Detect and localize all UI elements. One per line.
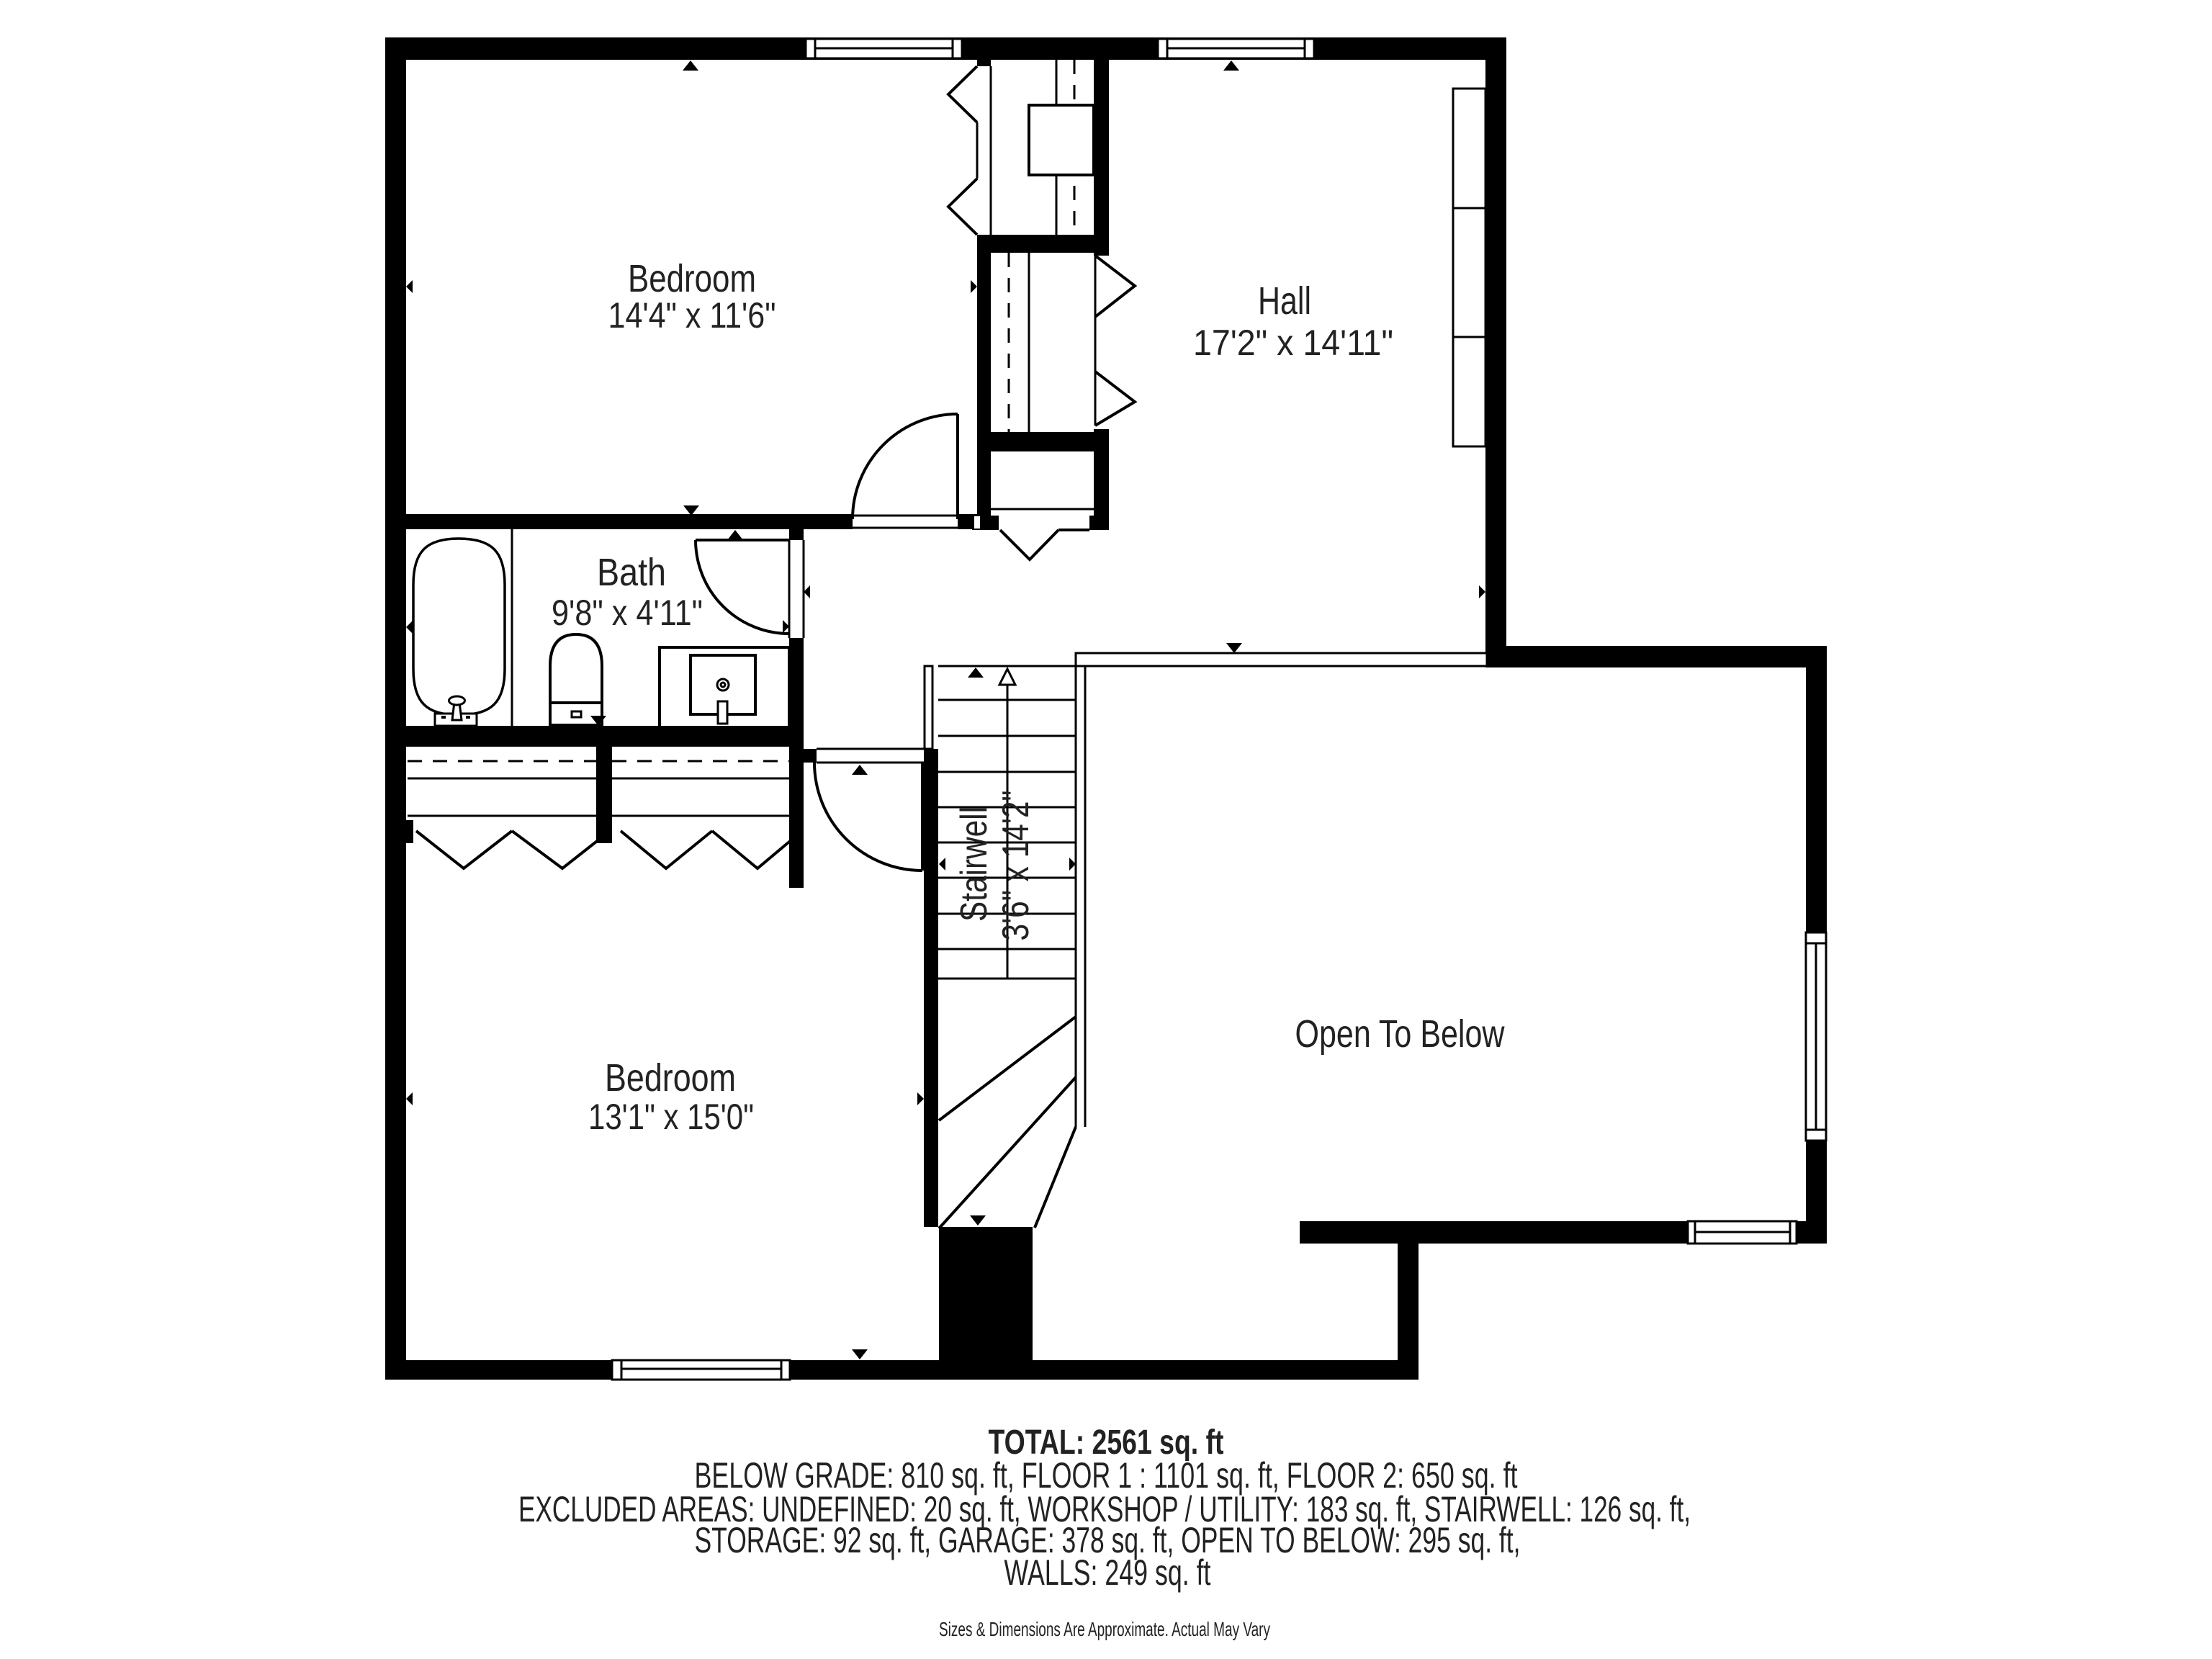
svg-text:3'6" x 14'2": 3'6" x 14'2" <box>995 791 1037 941</box>
svg-text:17'2" x 14'11": 17'2" x 14'11" <box>1193 323 1393 363</box>
svg-text:14'4" x 11'6": 14'4" x 11'6" <box>608 295 776 336</box>
svg-text:Bedroom: Bedroom <box>605 1056 736 1100</box>
svg-text:13'1" x 15'0": 13'1" x 15'0" <box>588 1097 754 1137</box>
svg-text:Bedroom: Bedroom <box>628 257 756 300</box>
svg-text:Stairwell: Stairwell <box>953 806 995 922</box>
svg-text:9'8" x 4'11": 9'8" x 4'11" <box>552 593 703 633</box>
svg-text:Hall: Hall <box>1258 279 1311 323</box>
svg-text:WALLS: 249 sq. ft: WALLS: 249 sq. ft <box>1004 1552 1211 1593</box>
svg-text:Bath: Bath <box>597 551 666 594</box>
svg-text:Open To Below: Open To Below <box>1295 1012 1506 1056</box>
svg-text:Sizes & Dimensions Are Approxi: Sizes & Dimensions Are Approximate. Actu… <box>939 1618 1270 1640</box>
